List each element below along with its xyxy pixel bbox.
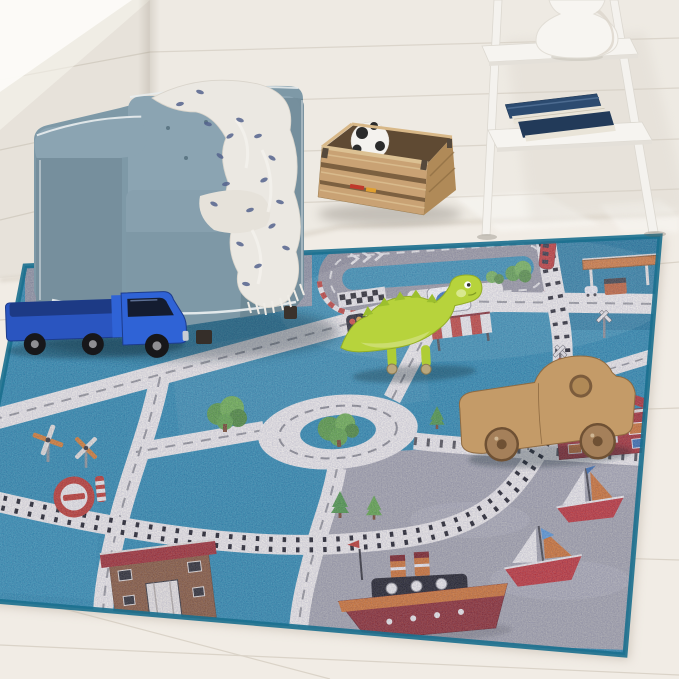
car-window bbox=[570, 376, 591, 397]
scene-photo-svg bbox=[0, 0, 679, 679]
chair-left-arm-front bbox=[36, 158, 122, 308]
toy-crate bbox=[318, 122, 462, 225]
product-photo bbox=[0, 0, 679, 679]
